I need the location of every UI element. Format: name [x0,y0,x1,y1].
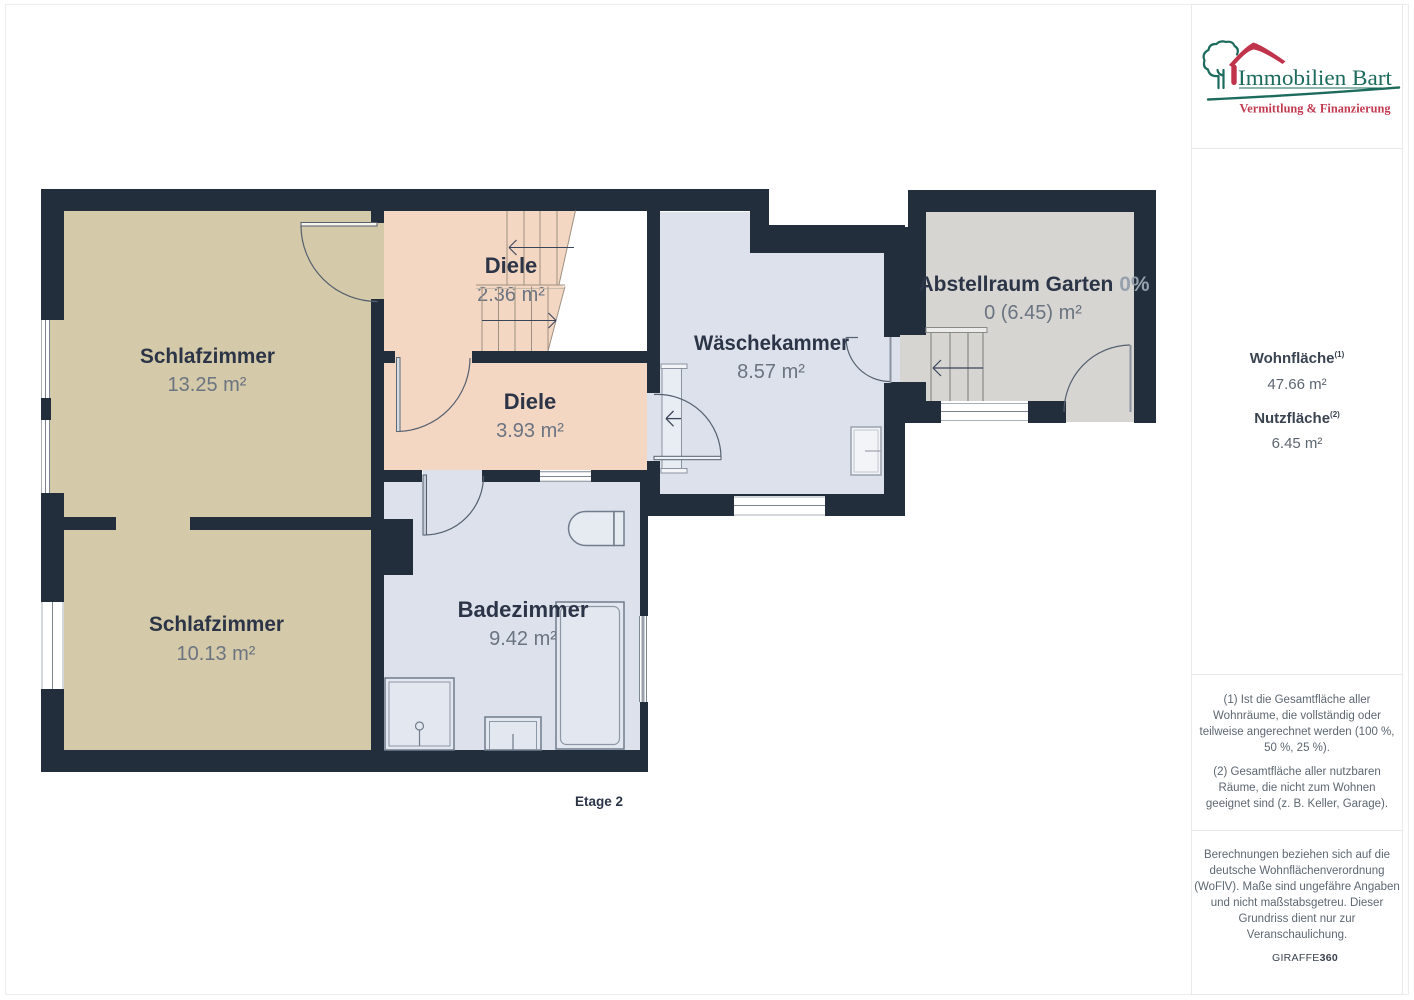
svg-text:Badezimmer: Badezimmer [458,597,589,622]
svg-text:2.36 m²: 2.36 m² [477,284,545,306]
svg-text:Etage 2: Etage 2 [575,794,623,809]
svg-text:Diele: Diele [485,253,538,278]
svg-text:Schlafzimmer: Schlafzimmer [140,344,276,368]
svg-text:8.57 m²: 8.57 m² [737,361,805,383]
svg-text:Wäschekammer: Wäschekammer [694,332,849,355]
svg-text:Vermittlung & Finanzierung: Vermittlung & Finanzierung [1240,101,1391,116]
svg-text:10.13 m²: 10.13 m² [177,643,256,665]
svg-text:Schlafzimmer: Schlafzimmer [149,612,285,636]
svg-text:Abstellraum Garten 0%: Abstellraum Garten 0% [918,273,1149,296]
svg-text:Immobilien Bart: Immobilien Bart [1238,65,1392,90]
svg-text:3.93 m²: 3.93 m² [496,420,564,442]
svg-text:0 (6.45) m²: 0 (6.45) m² [984,302,1082,324]
svg-text:Diele: Diele [504,389,557,414]
svg-text:13.25 m²: 13.25 m² [168,374,247,396]
svg-text:9.42 m²: 9.42 m² [489,628,557,650]
